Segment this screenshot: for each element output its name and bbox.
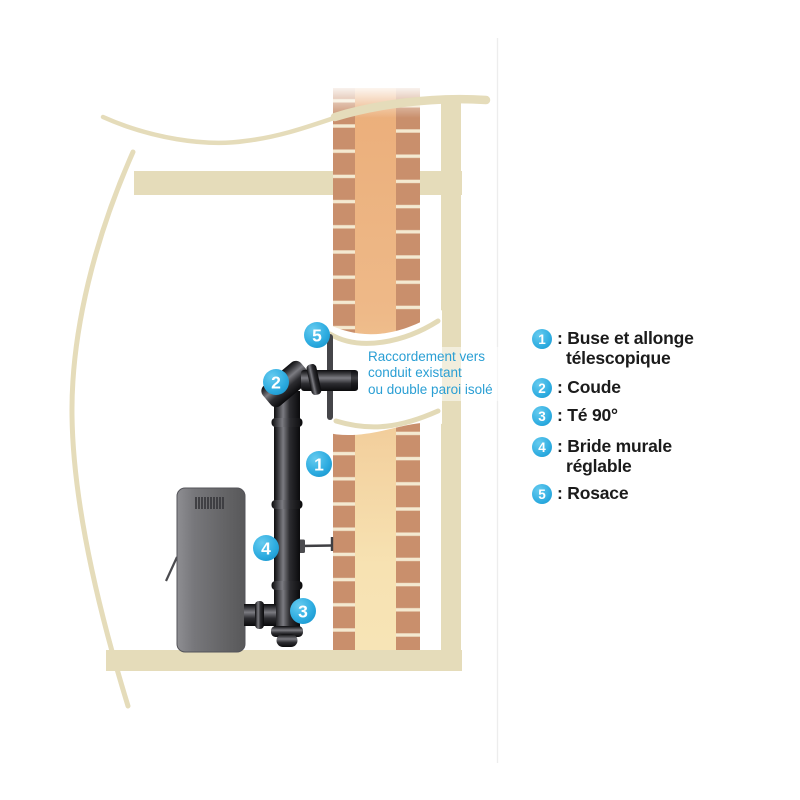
tee-stub-collar (255, 601, 264, 629)
legend-badge-4: 4 (532, 437, 552, 457)
legend-badge-3: 3 (532, 406, 552, 426)
legend-badge-5: 5 (532, 484, 552, 504)
legend-item-4: 4 : Bride murale réglable (532, 437, 762, 476)
pipe-joint-ring-2 (272, 500, 303, 509)
left-wall-outline (72, 152, 133, 706)
legend-badge-1: 1 (532, 329, 552, 349)
legend-badge-2: 2 (532, 378, 552, 398)
stove-body (177, 488, 245, 652)
legend-item-3: 3 : Té 90° (532, 406, 762, 426)
diagram-badge-3: 3 (290, 598, 316, 624)
legend-item-1-label: : Buse et allonge (557, 329, 694, 349)
ceiling-cut-line (103, 116, 340, 143)
annotation-line-2: conduit existant (368, 365, 493, 381)
page: { "diagram": { "badge_numbers": ["1", "2… (0, 0, 800, 800)
legend-item-5-label: : Rosace (557, 484, 628, 504)
legend-item-1: 1 : Buse et allonge télescopique (532, 329, 762, 368)
pellet-stove (166, 488, 245, 652)
annotation-line-1: Raccordement vers (368, 349, 493, 365)
diagram-badge-5-number: 5 (312, 326, 322, 346)
diagram-badge-1-number: 1 (314, 455, 324, 475)
legend-item-2: 2 : Coude (532, 378, 762, 398)
tee-bottom-cap (277, 634, 298, 647)
legend-item-2-label: : Coude (557, 378, 621, 398)
diagram-badge-2-number: 2 (271, 373, 281, 393)
legend-item-1-label-line2: télescopique (557, 349, 694, 369)
diagram-badge-3-number: 3 (298, 602, 308, 622)
annotation-line-3: ou double paroi isolé (368, 382, 493, 398)
legend-item-5: 5 : Rosace (532, 484, 762, 504)
diagram-badge-4: 4 (253, 535, 279, 561)
legend-item-4-label: : Bride murale (557, 437, 672, 457)
pipe-joint-ring-1 (272, 418, 303, 427)
legend-item-3-label: : Té 90° (557, 406, 618, 426)
diagram-badge-5: 5 (304, 322, 330, 348)
pipe-joint-ring-3 (272, 581, 303, 590)
diagram-badge-1: 1 (306, 451, 332, 477)
floor (106, 650, 462, 671)
stove-cable (166, 557, 177, 581)
legend: 1 : Buse et allonge télescopique 2 : Cou… (532, 329, 762, 504)
diagram-badge-2: 2 (263, 369, 289, 395)
annotation-note: Raccordement vers conduit existant ou do… (363, 347, 499, 401)
pipe-end-shade (351, 371, 358, 391)
legend-item-4-label-line2: réglable (557, 457, 672, 477)
diagram-badge-4-number: 4 (261, 539, 271, 559)
